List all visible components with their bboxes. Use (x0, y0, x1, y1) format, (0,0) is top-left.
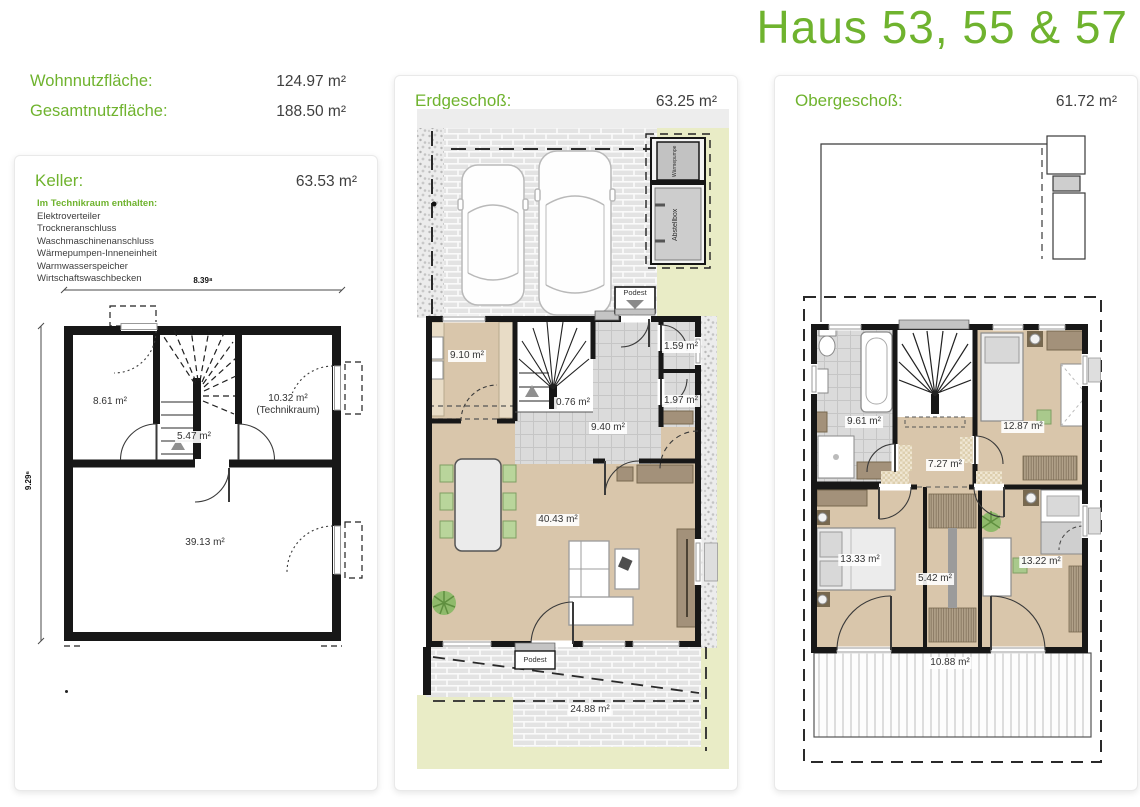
room-label-ankleide: 5.42 m² (916, 573, 954, 585)
erdgeschoss-title: Erdgeschoß: (415, 91, 511, 111)
room-label-terrasse: 24.88 m² (568, 704, 611, 716)
keller-floor-plan: 8.39⁸ 9.29⁶ 8.61 m² 5.47 m² 10.32 m² (Te… (25, 274, 367, 729)
toilet-icon (819, 329, 836, 356)
room-label-hobbyraum: 8.61 m² (91, 396, 129, 408)
obergeschoss-card-header: Obergeschoß: 61.72 m² (775, 76, 1137, 111)
car-icon (535, 151, 615, 315)
summary-row-wohnnutzflaeche: Wohnnutzfläche: 124.97 m² (30, 72, 346, 91)
room-label-diele: 9.40 m² (589, 422, 627, 434)
keller-width-dimension: 8.39⁸ (193, 276, 212, 285)
street-marker-icon (432, 202, 437, 207)
room-label-og-flur: 7.27 m² (926, 459, 964, 471)
note-item: Elektroverteiler (37, 211, 157, 224)
note-item: Warmwasserspeicher (37, 261, 157, 274)
technikraum-name: (Technikraum) (256, 405, 319, 417)
summary-row-gesamtnutzflaeche: Gesamtnutzfläche: 188.50 m² (30, 102, 346, 121)
obergeschoss-floor-plan-drawing (785, 114, 1127, 774)
technikraum-note: Im Technikraum enthalten: Elektroverteil… (37, 198, 157, 286)
room-label-kueche: 9.10 m² (448, 350, 486, 362)
keller-card-header: Keller: 63.53 m² (15, 156, 377, 191)
wohnnutzflaeche-label: Wohnnutzfläche: (30, 72, 153, 91)
room-label-wc: 1.59 m² (662, 341, 700, 353)
bed-icon (981, 333, 1023, 421)
room-label-zimmer2: 13.22 m² (1019, 556, 1062, 568)
abstellbox-label: Abstellbox (672, 190, 679, 259)
gesamtnutzflaeche-label: Gesamtnutzfläche: (30, 102, 168, 121)
room-label-balkon: 10.88 m² (928, 657, 971, 669)
keller-floor-plan-drawing (25, 274, 367, 729)
room-label-abstellraum: 1.97 m² (662, 395, 700, 407)
page-title: Haus 53, 55 & 57 (757, 0, 1128, 54)
car-icon (458, 165, 528, 305)
sofa (569, 541, 639, 625)
keller-height-dimension: 9.29⁶ (24, 471, 33, 490)
room-label-zimmer1: 12.87 m² (1001, 421, 1044, 433)
technikraum-area: 10.32 m² (256, 393, 319, 405)
desk-icon (983, 538, 1011, 596)
stray-dot (65, 690, 68, 693)
obergeschoss-floor-plan: 9.61 m² 7.27 m² 12.87 m² 13.33 m² 5.42 m… (785, 114, 1127, 774)
gesamtnutzflaeche-value: 188.50 m² (276, 103, 346, 121)
technikraum-note-title: Im Technikraum enthalten: (37, 198, 157, 211)
room-label-bad: 9.61 m² (845, 416, 883, 428)
wohnnutzflaeche-value: 124.97 m² (276, 73, 346, 91)
room-label-abstellraum-treppe: 0.76 m² (554, 397, 592, 409)
room-label-kellerflur: 5.47 m² (175, 431, 213, 443)
obergeschoss-title: Obergeschoß: (795, 91, 903, 111)
erdgeschoss-floor-plan: Wärmepumpe Abstellbox Podest Podest 9.10… (403, 109, 729, 783)
waermepumpe-label: Wärmepumpe (672, 143, 678, 180)
dining-set (440, 459, 516, 551)
summary-block: Wohnnutzfläche: 124.97 m² Gesamtnutzfläc… (30, 72, 346, 132)
podest-entry-label: Podest (621, 288, 648, 297)
room-label-schlafzimmer: 13.33 m² (838, 554, 881, 566)
shower-icon (818, 436, 854, 478)
podest-terrace-label: Podest (521, 655, 548, 664)
keller-title: Keller: (35, 171, 83, 191)
obergeschoss-card: Obergeschoß: 61.72 m² (774, 75, 1138, 791)
keller-area-value: 63.53 m² (296, 173, 357, 191)
room-label-kellerraum: 39.13 m² (183, 537, 226, 549)
erdgeschoss-card: Erdgeschoß: 63.25 m² (394, 75, 738, 791)
room-label-wohnen-essen: 40.43 m² (536, 514, 579, 526)
note-item: Trockneranschluss (37, 223, 157, 236)
room-label-technikraum: 10.32 m² (Technikraum) (254, 393, 321, 417)
note-item: Wärmepumpen-Inneneinheit (37, 248, 157, 261)
bathtub-icon (861, 332, 892, 412)
erdgeschoss-floor-plan-drawing (403, 109, 729, 783)
keller-card: Keller: 63.53 m² Im Technikraum enthalte… (14, 155, 378, 791)
erdgeschoss-card-header: Erdgeschoß: 63.25 m² (395, 76, 737, 111)
note-item: Waschmaschinenanschluss (37, 236, 157, 249)
plant-icon (432, 591, 456, 615)
obergeschoss-area-value: 61.72 m² (1056, 93, 1117, 111)
